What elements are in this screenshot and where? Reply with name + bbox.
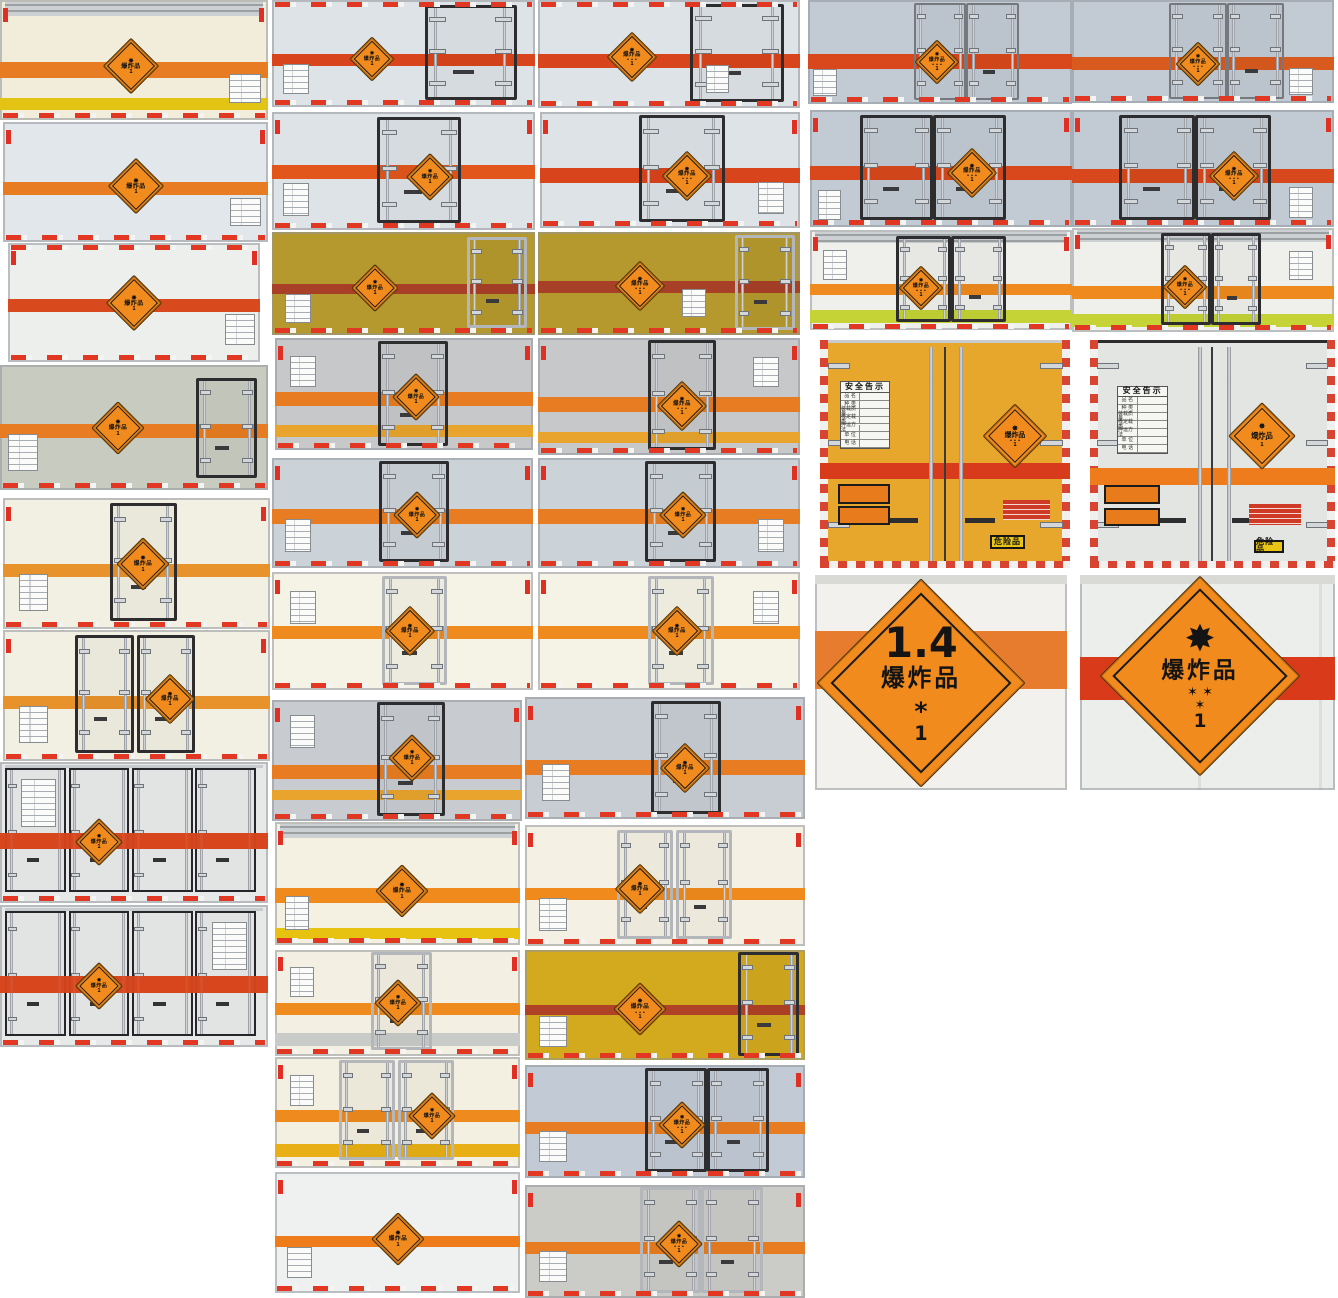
hinge: [1213, 14, 1224, 19]
hinge: [650, 1081, 661, 1086]
transport-panel-2: [838, 506, 891, 524]
lock-rod: [58, 913, 61, 1034]
sign-row-label: 单 位: [1118, 437, 1138, 444]
tail-lamp-right: [792, 120, 797, 134]
hinge: [643, 129, 659, 134]
hinge: [762, 49, 780, 54]
hinge: [938, 247, 948, 252]
hinge: [382, 202, 398, 207]
hinge: [119, 730, 130, 735]
explosive-placard: ✸爆炸品1: [91, 401, 145, 455]
placard-number: 1: [414, 400, 417, 405]
hinge: [762, 82, 780, 87]
lock-rod: [122, 770, 125, 890]
truck-rear-gold: ✸爆炸品• • •1: [525, 950, 805, 1060]
placard-number: 1: [97, 845, 100, 850]
hinge: [1165, 245, 1174, 250]
cargo-door: [339, 1060, 395, 1160]
hinge: [382, 130, 398, 135]
placard-number: 1: [141, 567, 144, 572]
tail-lamp-right: [796, 706, 801, 720]
hinge: [937, 128, 950, 133]
cargo-door: [701, 1187, 763, 1293]
sign-title-row: 安全告示: [841, 382, 889, 393]
reflective-strip-bottom: [813, 324, 1070, 329]
paint-stripe: [0, 976, 268, 993]
vent-rail: [280, 824, 515, 838]
danger-goods-plate: 危险品: [1254, 540, 1283, 553]
tail-lamp-right: [796, 1073, 801, 1087]
tail-lamp-right: [252, 251, 257, 265]
placard-content: ✸爆炸品1: [115, 284, 153, 322]
placard-star: *: [914, 698, 927, 723]
hinge: [969, 81, 979, 86]
tail-lamp-left: [813, 118, 818, 132]
hinge: [993, 305, 1003, 310]
hinge: [1230, 47, 1241, 52]
hinge: [954, 48, 964, 53]
hinge: [711, 1116, 722, 1121]
sign-row-label: 电 话: [1118, 445, 1138, 452]
hinge: [512, 279, 523, 284]
hinge: [242, 390, 253, 395]
hinge: [1124, 199, 1138, 204]
hinge: [417, 964, 428, 969]
hinge: [198, 927, 207, 931]
reflective-strip-bottom: [813, 220, 1070, 225]
explosive-placard: ✸爆炸品1: [103, 38, 160, 95]
sign-row-label: 单 位: [841, 432, 860, 439]
lock-rod: [959, 347, 963, 561]
sign-row-label: 押运方法: [1118, 429, 1138, 436]
tail-lamp-left: [275, 708, 280, 722]
sign-rows: 品 名种 类装载质量核定载质押运方法单 位电 话: [1118, 397, 1167, 453]
hinge: [644, 1236, 655, 1241]
hinge: [134, 927, 143, 931]
spec-info-placard: [290, 715, 315, 749]
truck-rear-blue-double-black-2: ✸爆炸品• • •1: [1072, 110, 1334, 227]
door-latch: [727, 1140, 740, 1144]
placard-number: 1: [914, 723, 927, 742]
hinge: [748, 1272, 759, 1277]
spec-info-placard: [290, 356, 316, 387]
placard-content: ✸爆炸品1: [401, 499, 433, 531]
spec-info-placard: [21, 779, 56, 827]
hinge: [1215, 306, 1224, 311]
hinge: [1253, 128, 1267, 133]
hinge: [937, 163, 950, 168]
placard-content: ✸爆炸品• • •1: [906, 273, 936, 303]
hinge: [650, 1152, 661, 1157]
hinge: [655, 753, 668, 758]
tail-lamp-left: [528, 706, 533, 720]
tail-lamp-left: [6, 639, 11, 653]
hinge: [784, 965, 795, 970]
hinge: [8, 784, 17, 788]
hinge: [134, 1017, 143, 1021]
tail-lamp-left: [543, 120, 548, 134]
hinge: [432, 474, 445, 479]
spec-info-placard: [753, 591, 779, 624]
tail-lamp-right: [261, 639, 266, 653]
explosive-placard: ✸爆炸品✶ ✶✶1: [1099, 576, 1300, 777]
placard-number: 1: [675, 634, 678, 639]
reflective-edge-right: [1327, 340, 1335, 568]
hinge: [429, 17, 446, 22]
paint-stripe: [0, 98, 268, 110]
hinge: [1040, 522, 1063, 528]
tail-lamp-right: [260, 130, 265, 144]
hinge: [200, 424, 211, 429]
hinge: [680, 917, 690, 922]
hinge: [429, 49, 446, 54]
tail-lamp-left: [1075, 118, 1080, 132]
spec-info-placard: [283, 183, 309, 216]
company-sign: [1249, 504, 1300, 525]
hinge: [993, 276, 1003, 281]
hinge: [114, 598, 126, 603]
hinge: [686, 1200, 697, 1205]
lock-rod: [122, 913, 125, 1034]
hinge: [382, 425, 395, 430]
hinge: [621, 843, 631, 848]
hinge: [1248, 276, 1257, 281]
sign-title: 安全告示: [1123, 387, 1163, 395]
sign-row-label: 品 名: [841, 393, 860, 400]
truck-rear-cream-double-door-2: ✸爆炸品1: [275, 1057, 520, 1168]
spec-info-placard: [8, 434, 37, 472]
hinge: [652, 391, 664, 396]
hinge: [711, 1152, 722, 1157]
placard-number: 1: [1013, 443, 1017, 448]
hinge: [937, 199, 950, 204]
explosive-placard: ✸爆炸品1: [349, 36, 394, 81]
spec-info-placard: [290, 591, 316, 624]
hinge: [181, 730, 192, 735]
hinge: [1006, 48, 1016, 53]
hinge: [383, 542, 396, 547]
explosive-placard: ✸爆炸品• • •1: [615, 260, 666, 311]
reflective-strip-bottom: [3, 483, 266, 488]
spec-info-placard: [229, 74, 261, 103]
hinge: [71, 873, 80, 877]
lock-rod: [1227, 347, 1231, 561]
reflective-strip-bottom: [277, 1161, 517, 1166]
hinge: [471, 310, 482, 315]
hinge: [1270, 14, 1281, 19]
reflective-strip-bottom: [275, 100, 533, 105]
placard-number: 1: [682, 518, 685, 523]
placard-number: 1: [396, 1006, 399, 1011]
placard-content: ✸爆炸品• • •1: [993, 414, 1037, 458]
hinge: [471, 279, 482, 284]
sign-row: 电 话: [1118, 445, 1167, 453]
tail-lamp-right: [512, 1065, 517, 1079]
hinge: [742, 965, 753, 970]
door-latch: [983, 70, 995, 74]
placard-content: ✸爆炸品1: [384, 873, 420, 909]
door-latch: [965, 518, 995, 523]
spec-info-placard: [283, 64, 309, 94]
hinge: [706, 1236, 717, 1241]
tail-lamp-right: [1326, 118, 1331, 132]
placard-content: ✸爆炸品1: [83, 826, 115, 858]
reflective-strip-bottom: [1075, 325, 1332, 330]
hinge: [699, 429, 711, 434]
hinge: [739, 311, 750, 316]
cargo-door: [735, 235, 795, 330]
placard-content: ✸爆炸品✶ ✶✶1: [1130, 606, 1270, 746]
hinge: [1006, 81, 1016, 86]
placard-closeup-explosive: ✸爆炸品✶ ✶✶1: [1080, 575, 1335, 790]
reflective-strip-bottom: [3, 113, 266, 118]
reflective-edge-left: [820, 340, 828, 568]
door-latch: [153, 1002, 165, 1006]
hinge: [955, 247, 965, 252]
placard-number: 1: [680, 1130, 683, 1135]
tail-lamp-left: [11, 251, 16, 265]
reflective-strip-bottom: [541, 561, 798, 566]
hinge: [643, 201, 659, 206]
hinge: [198, 1017, 207, 1021]
transport-panel-2: [1104, 508, 1160, 526]
placard-number: 1: [638, 893, 641, 898]
hinge: [969, 48, 979, 53]
door-latch: [754, 300, 767, 304]
hinge: [917, 14, 927, 19]
tail-lamp-left: [813, 237, 818, 251]
hinge: [79, 649, 90, 654]
spec-info-placard: [225, 314, 255, 345]
hinge: [382, 354, 395, 359]
cargo-door: [966, 3, 1019, 100]
placard-content: ✸爆炸品1: [414, 161, 446, 193]
truck-rear-white-double-green-2: ✸爆炸品• • •1: [1072, 228, 1334, 332]
spec-info-placard: [19, 574, 48, 611]
truck-rear-bluegray-center-door: ✸爆炸品1: [272, 458, 533, 568]
reflective-strip-bottom: [6, 754, 268, 759]
reflective-strip-bottom: [1075, 220, 1332, 225]
transport-panel-1: [838, 484, 891, 505]
safety-notice-sign: 安全告示品 名种 类装载质量核定载质押运方法单 位电 话: [1117, 386, 1168, 454]
hinge: [938, 276, 948, 281]
hinge: [1270, 47, 1281, 52]
tail-lamp-right: [1326, 235, 1331, 249]
hinge: [181, 649, 192, 654]
truck-rear-blue-double-black: ✸爆炸品• • •1: [810, 110, 1072, 227]
hinge: [428, 716, 440, 721]
tail-lamp-right: [525, 580, 530, 594]
tail-lamp-left: [6, 507, 11, 521]
door-latch: [883, 187, 899, 191]
hinge: [900, 247, 910, 252]
truck-rear-sage-door: ✸爆炸品1: [0, 365, 268, 490]
hinge: [471, 249, 482, 254]
placard-content: ✸爆炸品• • •1: [1183, 49, 1213, 79]
hinge: [686, 1272, 697, 1277]
hinge: [704, 753, 717, 758]
spec-info-placard: [1289, 68, 1313, 95]
hinge: [383, 474, 396, 479]
hinge: [915, 199, 928, 204]
truck-rear-white: ✸爆炸品1: [8, 243, 260, 362]
placard-number: 1: [1196, 69, 1199, 74]
reflective-strip-bottom: [277, 1049, 517, 1054]
door-latch: [216, 1002, 228, 1006]
hinge: [8, 1017, 17, 1021]
placard-number: 1: [638, 291, 641, 296]
hinge: [402, 1073, 412, 1078]
placard-number: 1: [971, 179, 974, 184]
hinge: [71, 927, 80, 931]
hinge: [692, 1152, 703, 1157]
truck-rear-cream-double-door: ✸爆炸品1: [3, 630, 270, 761]
hinge: [699, 354, 711, 359]
placard-content: ✸爆炸品1: [357, 44, 387, 74]
reflective-strip-bottom: [278, 443, 531, 448]
hinge: [1200, 199, 1214, 204]
hinge: [652, 354, 664, 359]
reflective-strip-top: [275, 2, 533, 7]
hinge: [748, 1236, 759, 1241]
explosive-placard: ✸爆炸品1: [371, 1212, 425, 1266]
hinge: [119, 690, 130, 695]
hinge: [680, 843, 690, 848]
truck-rear-olive-2: ✸爆炸品• • •1: [538, 232, 800, 335]
tail-lamp-right: [525, 466, 530, 480]
spec-info-placard: [539, 1016, 567, 1047]
truck-rear-silver-center-door: ✸爆炸品1: [275, 338, 533, 450]
reflective-strip-bottom: [275, 561, 531, 566]
reflective-strip-bottom: [6, 235, 266, 240]
placard-number: 1: [116, 431, 119, 436]
placard-content: ✸爆炸品1: [112, 47, 150, 85]
spec-info-placard: [753, 357, 779, 387]
explosive-placard: 1.4爆炸品*1: [816, 578, 1025, 787]
truck-rear-olive: ✸爆炸品1: [272, 232, 535, 335]
placard-content: ✸爆炸品1: [667, 499, 699, 531]
tail-lamp-left: [541, 346, 546, 360]
tail-lamp-left: [1075, 235, 1080, 249]
door-panel: [195, 768, 256, 892]
reflective-strip-bottom: [3, 1040, 266, 1045]
reflective-strip-bottom: [277, 1286, 517, 1291]
truck-rear-white-double-green: ✸爆炸品• • •1: [810, 230, 1072, 330]
truck-rear-cream-center-door-3: ✸爆炸品1: [538, 572, 800, 690]
door-latch: [1227, 296, 1238, 300]
reflective-strip-bottom: [528, 1291, 802, 1296]
hinge: [1306, 440, 1328, 446]
hinge: [1040, 440, 1063, 446]
hinge: [680, 880, 690, 885]
tail-lamp-right: [796, 833, 801, 847]
placard-content: ✸爆炸品• • •1: [922, 47, 952, 77]
hinge: [644, 1272, 655, 1277]
explosion-icon: ✸: [1184, 621, 1215, 658]
hinge: [762, 16, 780, 21]
reflective-strip-bottom: [11, 355, 258, 360]
tail-lamp-left: [278, 1065, 283, 1079]
hinge: [1172, 47, 1183, 52]
tail-lamp-left: [541, 580, 546, 594]
truck-photo-collage: ✸爆炸品1✸爆炸品1✸爆炸品1✸爆炸品1✸爆炸品1✸爆炸品1✸爆炸品1✸爆炸品1…: [0, 0, 1338, 1298]
placard-number: 1: [401, 895, 404, 900]
hinge: [739, 279, 750, 284]
truck-rear-silver-center-door-2: ✸爆炸品• • •1: [538, 338, 800, 455]
danger-goods-label: 危险品: [1256, 538, 1281, 554]
sign-row: 电 话: [841, 440, 889, 448]
placard-content: ✸爆炸品1: [359, 272, 391, 304]
truck-rear-blue-right-door-2: ✸爆炸品• • •1: [538, 0, 800, 108]
spec-info-placard: [285, 896, 310, 930]
hinge: [1306, 363, 1328, 369]
hinge: [704, 714, 717, 719]
spec-info-placard: [758, 182, 784, 214]
transport-panel-1: [1104, 485, 1160, 504]
lock-rod: [248, 913, 251, 1034]
hinge: [381, 1140, 391, 1145]
door-latch: [94, 717, 107, 721]
spec-info-placard: [813, 69, 837, 96]
truck-rear-cream-center-door: ✸爆炸品1: [3, 498, 270, 629]
hinge: [1040, 363, 1063, 369]
tail-lamp-right: [514, 708, 519, 722]
hinge: [495, 81, 512, 86]
reflective-strip-bottom: [541, 683, 798, 688]
placard-content: ✸爆炸品1: [400, 381, 432, 413]
sign-title-row: 安全告示: [1118, 387, 1167, 398]
door-latch: [27, 1002, 39, 1006]
hinge: [71, 784, 80, 788]
hinge: [381, 1073, 391, 1078]
lock-rod: [929, 347, 933, 561]
truck-rear-four-door-a: ✸爆炸品1: [0, 762, 268, 903]
placard-content: ✸爆炸品1: [393, 614, 427, 648]
reflective-strip-bottom: [6, 622, 268, 627]
truck-rear-cream-double-door-3: ✸爆炸品1: [525, 825, 805, 946]
hinge: [1124, 128, 1138, 133]
tail-lamp-left: [278, 346, 283, 360]
hinge: [1230, 14, 1241, 19]
hinge: [955, 305, 965, 310]
reflective-strip-bottom: [811, 97, 1070, 102]
reflective-strip-bottom: [275, 328, 533, 333]
hinge: [1253, 199, 1267, 204]
company-sign: [1003, 500, 1051, 521]
spec-info-placard: [287, 1247, 312, 1278]
door-split-line: [1211, 347, 1213, 561]
door-latch: [721, 1260, 734, 1264]
hinge: [784, 1000, 795, 1005]
hinge: [242, 458, 253, 463]
hinge: [989, 199, 1002, 204]
hinge: [652, 664, 664, 669]
hinge: [375, 964, 386, 969]
spec-info-placard: [823, 250, 847, 280]
sign-row-label: 品 名: [1118, 397, 1138, 404]
placard-content: ✸爆炸品1: [668, 751, 702, 785]
hinge: [119, 649, 130, 654]
hinge: [655, 792, 668, 797]
tail-lamp-right: [512, 831, 517, 845]
hinge: [429, 81, 446, 86]
truck-rear-blue-double-thin-2: ✸爆炸品• • •1: [1072, 0, 1334, 103]
tail-lamp-left: [275, 580, 280, 594]
truck-rear-gray-center-door-2: ✸爆炸品1: [525, 697, 805, 819]
hinge: [1200, 128, 1214, 133]
tail-lamp-left: [278, 1180, 283, 1194]
reflective-edge-right: [1062, 340, 1070, 568]
